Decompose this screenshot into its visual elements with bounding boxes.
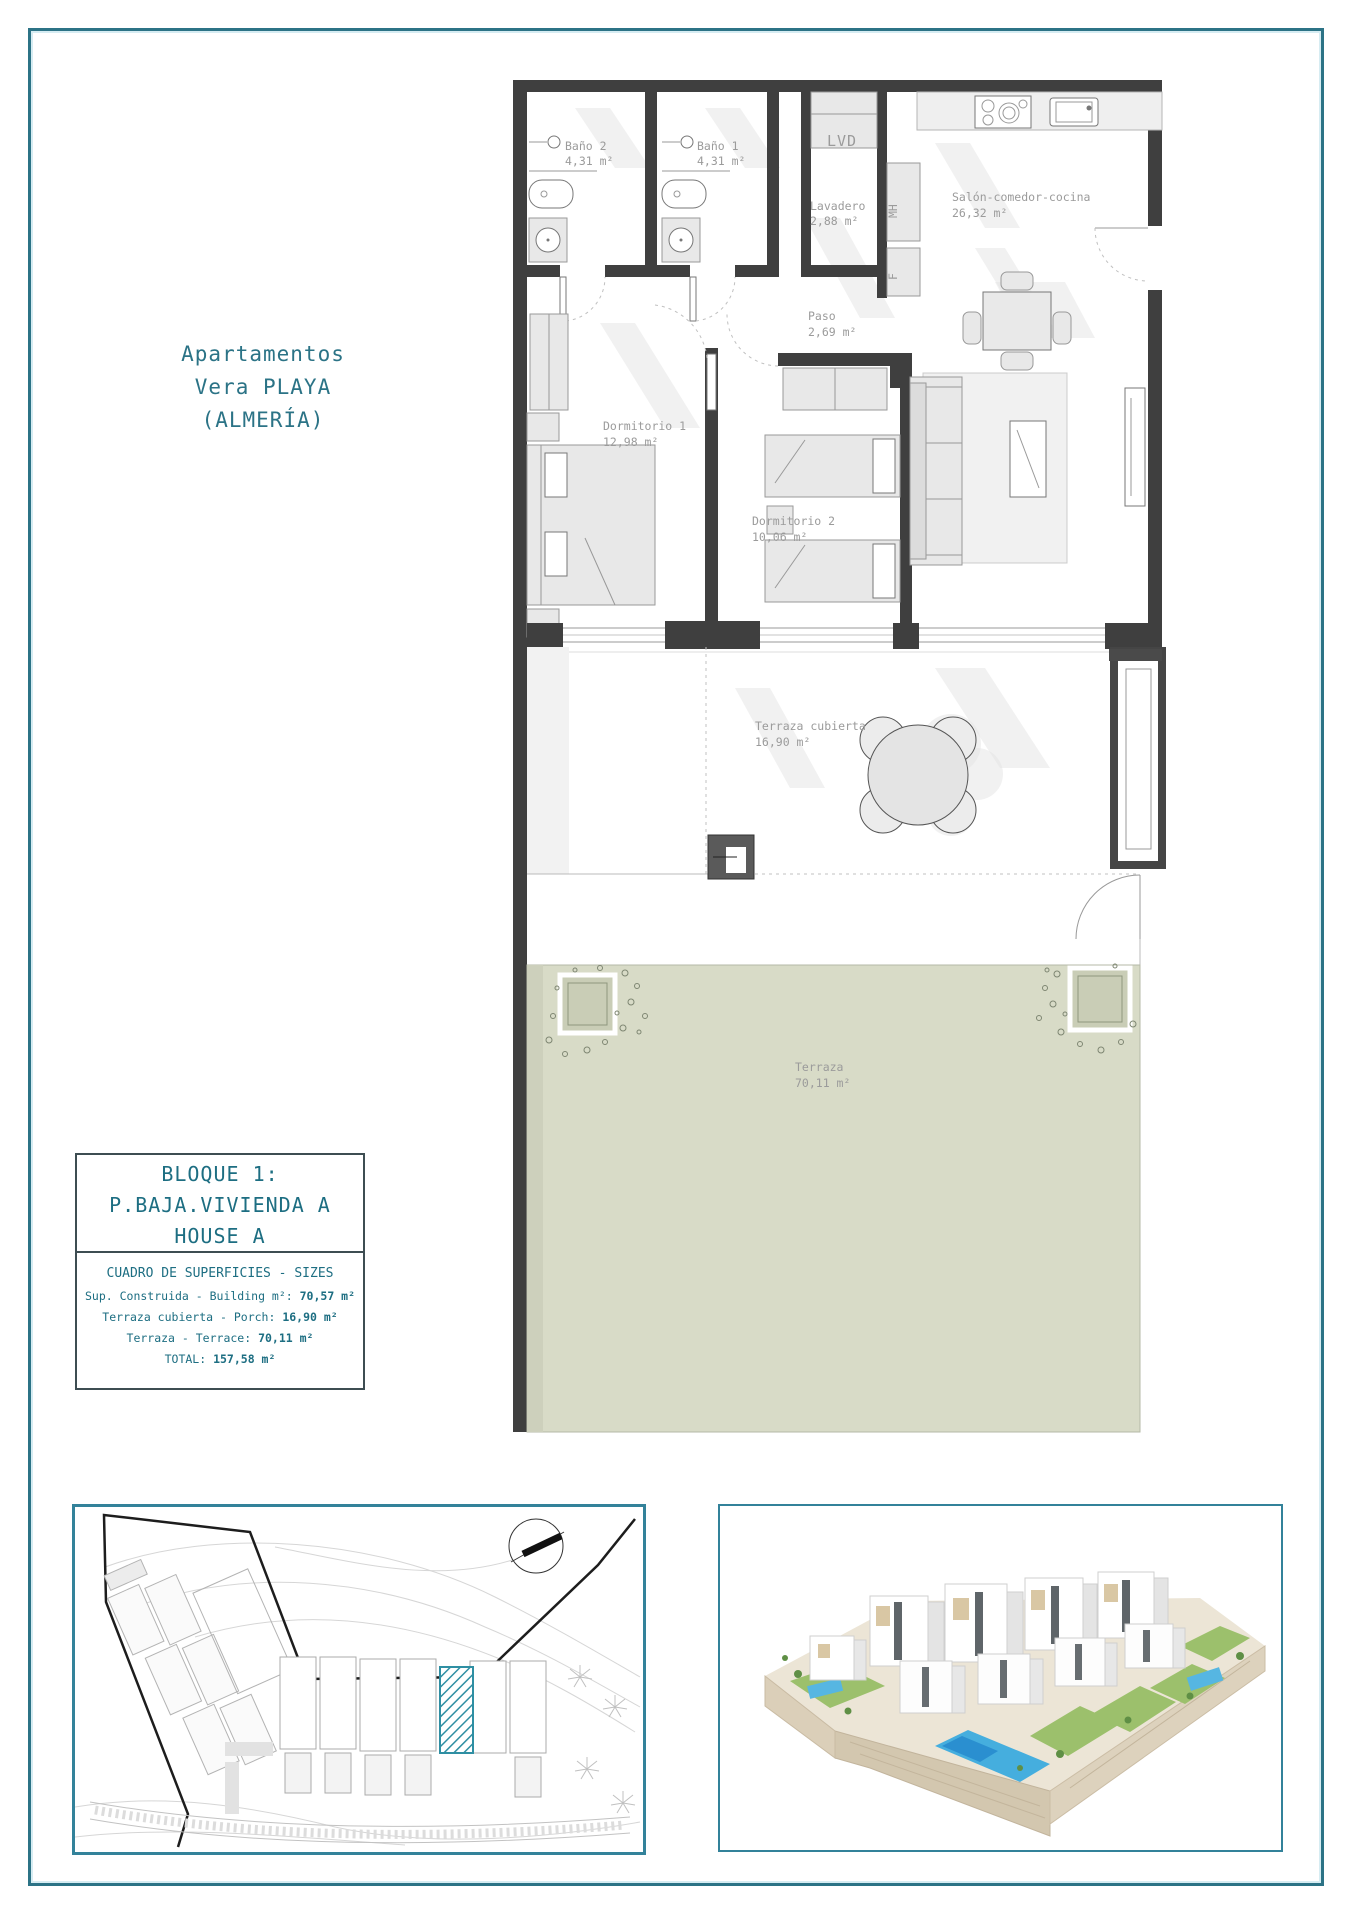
label-dorm2-area: 10,06 m² [752, 530, 807, 544]
sizes-row-porch-label: Terraza cubierta - Porch: [102, 1310, 282, 1324]
window-band [527, 621, 1148, 652]
terrace-side-door [1076, 875, 1140, 965]
terrace-pillar-icon [708, 835, 754, 879]
label-paso-name: Paso [808, 309, 836, 323]
label-terraza-cubierta-area: 16,90 m² [755, 735, 810, 749]
dining-table-icon [963, 272, 1095, 370]
unit-title: BLOQUE 1: P.BAJA.VIVIENDA A HOUSE A [77, 1155, 363, 1253]
bedroom2-furniture [765, 368, 900, 602]
entrance-door [1095, 228, 1148, 281]
highlighted-unit [440, 1667, 473, 1753]
sizes-row-total-label: TOTAL: [165, 1352, 213, 1366]
label-bano2-name: Baño 2 [565, 139, 607, 153]
living-room-furniture [910, 272, 1145, 565]
label-f: F [886, 273, 900, 280]
sizes-row-porch: Terraza cubierta - Porch: 16,90 m² [77, 1307, 363, 1328]
site-plan-drawing [75, 1507, 643, 1852]
sizes-row-building-label: Sup. Construida - Building m²: [85, 1289, 300, 1303]
label-salon-area: 26,32 m² [952, 206, 1007, 220]
palm-tree-icons [568, 1665, 635, 1813]
bedroom2-door [727, 314, 778, 366]
sizes-row-terrace: Terraza - Terrace: 70,11 m² [77, 1328, 363, 1349]
label-terraza-area: 70,11 m² [795, 1076, 850, 1090]
label-terraza-name: Terraza [795, 1060, 843, 1074]
label-paso-area: 2,69 m² [808, 325, 856, 339]
render-box [718, 1504, 1283, 1852]
north-indicator-icon [509, 1519, 564, 1573]
label-bano2-area: 4,31 m² [565, 154, 613, 168]
label-lavadero-area: 2,88 m² [810, 214, 858, 228]
bathroom-door-swings [560, 277, 735, 321]
sizes-row-terrace-value: 70,11 m² [258, 1331, 313, 1345]
project-title: Apartamentos Vera PLAYA (ALMERÍA) [113, 338, 413, 437]
sizes-row-building-value: 70,57 m² [300, 1289, 355, 1303]
unit-bloque: BLOQUE 1: [77, 1159, 363, 1190]
aerial-render-illustration [720, 1506, 1281, 1850]
terrace-storage-closet [1109, 649, 1162, 865]
title-line-1: Apartamentos [113, 338, 413, 371]
unit-info-box: BLOQUE 1: P.BAJA.VIVIENDA A HOUSE A CUAD… [75, 1153, 365, 1390]
site-units-row [225, 1657, 546, 1814]
label-mh: MH [886, 204, 900, 218]
site-plan-box [72, 1504, 646, 1855]
title-line-3: (ALMERÍA) [113, 404, 413, 437]
label-lvd: LVD [827, 132, 857, 150]
sizes-row-building: Sup. Construida - Building m²: 70,57 m² [77, 1286, 363, 1307]
brochure-page: Apartamentos Vera PLAYA (ALMERÍA) [0, 0, 1358, 1920]
floor-plan: Baño 2 4,31 m² Baño 1 4,31 m² LVD Lavade… [505, 68, 1175, 1443]
sizes-table: CUADRO DE SUPERFICIES - SIZES Sup. Const… [77, 1253, 363, 1370]
sizes-row-terrace-label: Terraza - Terrace: [127, 1331, 259, 1345]
open-terrace [527, 964, 1140, 1432]
label-lavadero-name: Lavadero [810, 199, 865, 213]
sizes-title: CUADRO DE SUPERFICIES - SIZES [77, 1262, 363, 1286]
sizes-row-total-value: 157,58 m² [213, 1352, 275, 1366]
sizes-row-porch-value: 16,90 m² [282, 1310, 337, 1324]
label-bano1-name: Baño 1 [697, 139, 739, 153]
sizes-row-total: TOTAL: 157,58 m² [77, 1349, 363, 1370]
label-salon-name: Salón-comedor-cocina [952, 190, 1090, 204]
site-road [90, 1802, 630, 1843]
label-dorm1-name: Dormitorio 1 [603, 419, 686, 433]
unit-house: HOUSE A [77, 1221, 363, 1252]
title-line-2: Vera PLAYA [113, 371, 413, 404]
unit-vivienda: P.BAJA.VIVIENDA A [77, 1190, 363, 1221]
label-dorm1-area: 12,98 m² [603, 435, 658, 449]
kitchen-counter [917, 92, 1162, 130]
label-bano1-area: 4,31 m² [697, 154, 745, 168]
label-terraza-cubierta-name: Terraza cubierta [755, 719, 866, 733]
label-dorm2-name: Dormitorio 2 [752, 514, 835, 528]
